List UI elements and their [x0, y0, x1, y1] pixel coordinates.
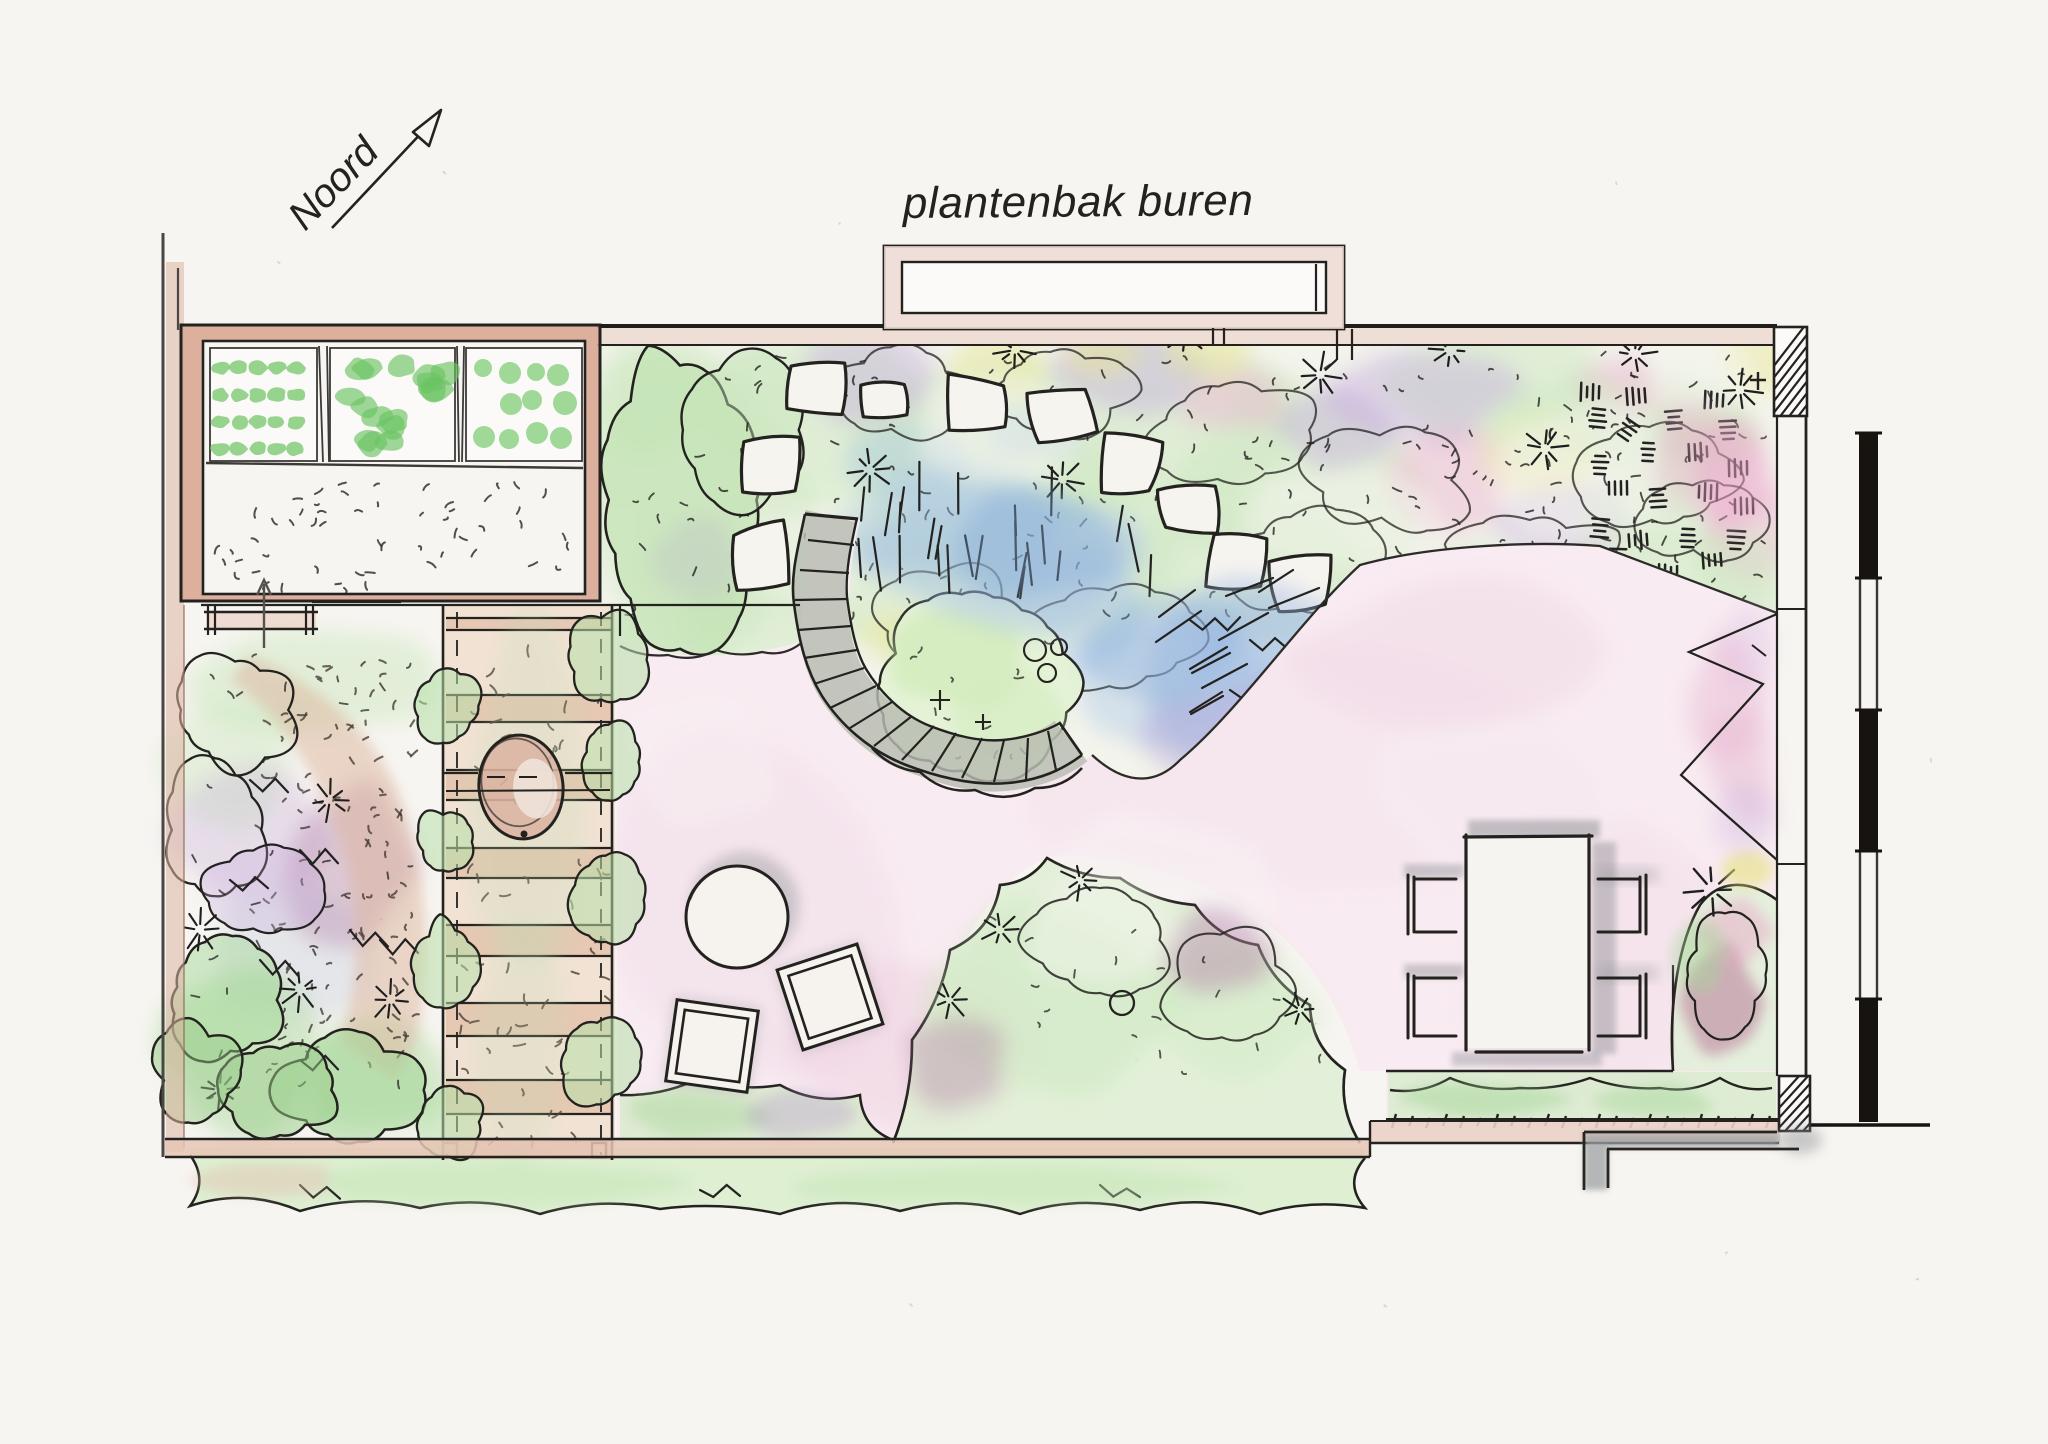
svg-text:plantenbak buren: plantenbak buren [901, 176, 1253, 228]
